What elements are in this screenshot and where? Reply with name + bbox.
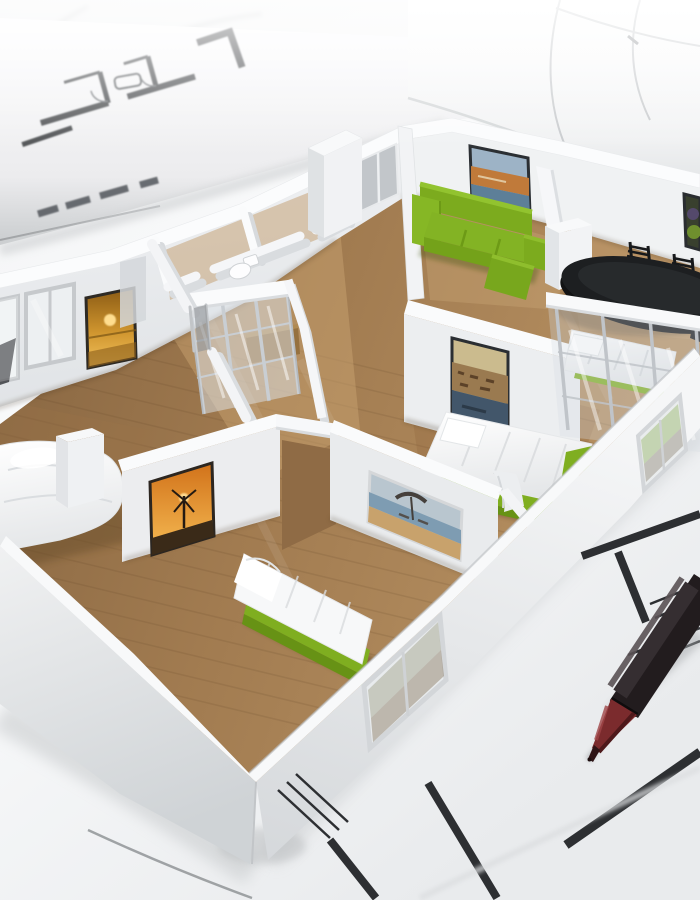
overexposure-haze [0,0,700,150]
floorplan-render [0,0,700,900]
wall-art-harbour-town [452,338,508,428]
window-left-a [26,284,74,368]
rendered-photo [0,0,700,900]
wall-art-fruit-still-life [684,194,700,250]
doorway-recess [120,256,146,328]
nightstand-block [56,428,104,508]
window-left-b [0,296,18,385]
